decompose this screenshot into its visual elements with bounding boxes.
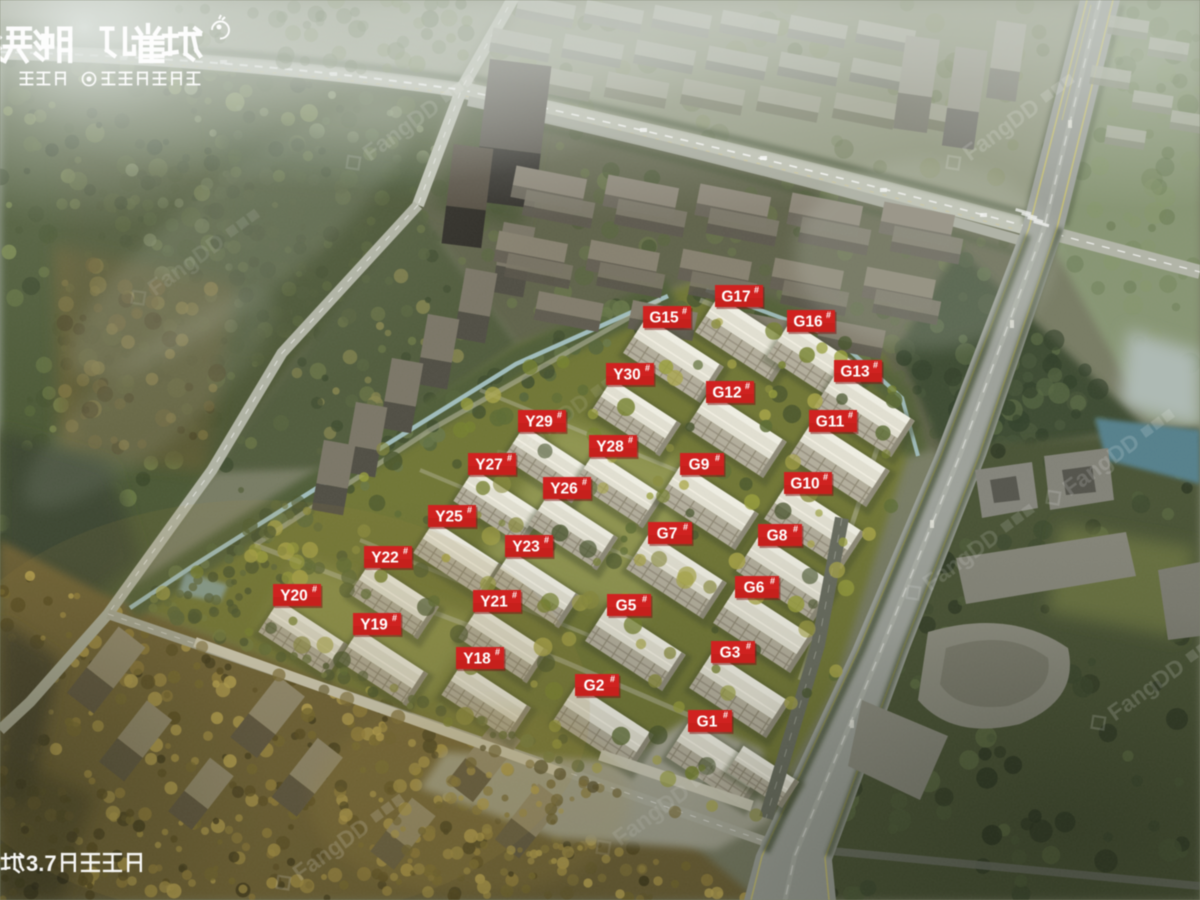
svg-text:#: # [793,524,798,534]
svg-text:#: # [682,306,687,316]
svg-text:G10: G10 [790,476,819,493]
svg-text:G6: G6 [744,580,765,597]
svg-text:#: # [848,410,853,420]
svg-text:#: # [403,546,408,556]
svg-text:#: # [746,641,751,651]
svg-text:#: # [544,535,549,545]
svg-text:G2: G2 [584,678,605,695]
svg-text:#: # [745,381,750,391]
svg-text:#: # [628,435,633,445]
svg-text:#: # [723,710,728,720]
svg-text:#: # [645,363,650,373]
svg-text:3.7: 3.7 [26,851,57,876]
svg-text:#: # [873,360,878,370]
svg-text:G17: G17 [721,289,750,306]
svg-text:G12: G12 [712,385,741,402]
svg-text:#: # [582,477,587,487]
svg-text:Y22: Y22 [371,550,399,567]
svg-text:#: # [495,647,500,657]
svg-text:Y26: Y26 [550,481,578,498]
svg-text:#: # [642,594,647,604]
svg-text:#: # [823,472,828,482]
svg-text:#: # [715,453,720,463]
svg-text:#: # [467,505,472,515]
svg-text:G16: G16 [793,314,823,331]
svg-text:Y28: Y28 [596,439,624,456]
svg-text:#: # [683,522,688,532]
svg-text:Y20: Y20 [280,588,308,605]
svg-text:#: # [557,410,562,420]
svg-text:G5: G5 [616,598,637,615]
svg-text:Y21: Y21 [480,594,508,611]
svg-text:Y27: Y27 [475,457,503,474]
svg-text:#: # [512,590,517,600]
svg-text:Y19: Y19 [360,617,388,634]
svg-text:#: # [610,674,615,684]
svg-text:G8: G8 [767,528,788,545]
svg-text:Y25: Y25 [435,509,463,526]
svg-text:G11: G11 [816,414,845,431]
svg-text:G9: G9 [689,457,710,474]
svg-text:#: # [312,584,317,594]
svg-text:G3: G3 [720,645,741,662]
svg-text:Y18: Y18 [463,651,491,668]
svg-text:#: # [770,576,775,586]
svg-text:Y23: Y23 [512,539,540,556]
svg-text:G13: G13 [840,364,870,381]
svg-text:G7: G7 [657,526,678,543]
svg-text:Y30: Y30 [613,367,641,384]
svg-text:#: # [754,285,759,295]
svg-text:#: # [507,453,512,463]
svg-text:G1: G1 [697,714,718,731]
svg-text:#: # [392,613,397,623]
svg-text:Y29: Y29 [525,414,553,431]
svg-text:G15: G15 [649,310,679,327]
svg-text:#: # [826,310,831,320]
